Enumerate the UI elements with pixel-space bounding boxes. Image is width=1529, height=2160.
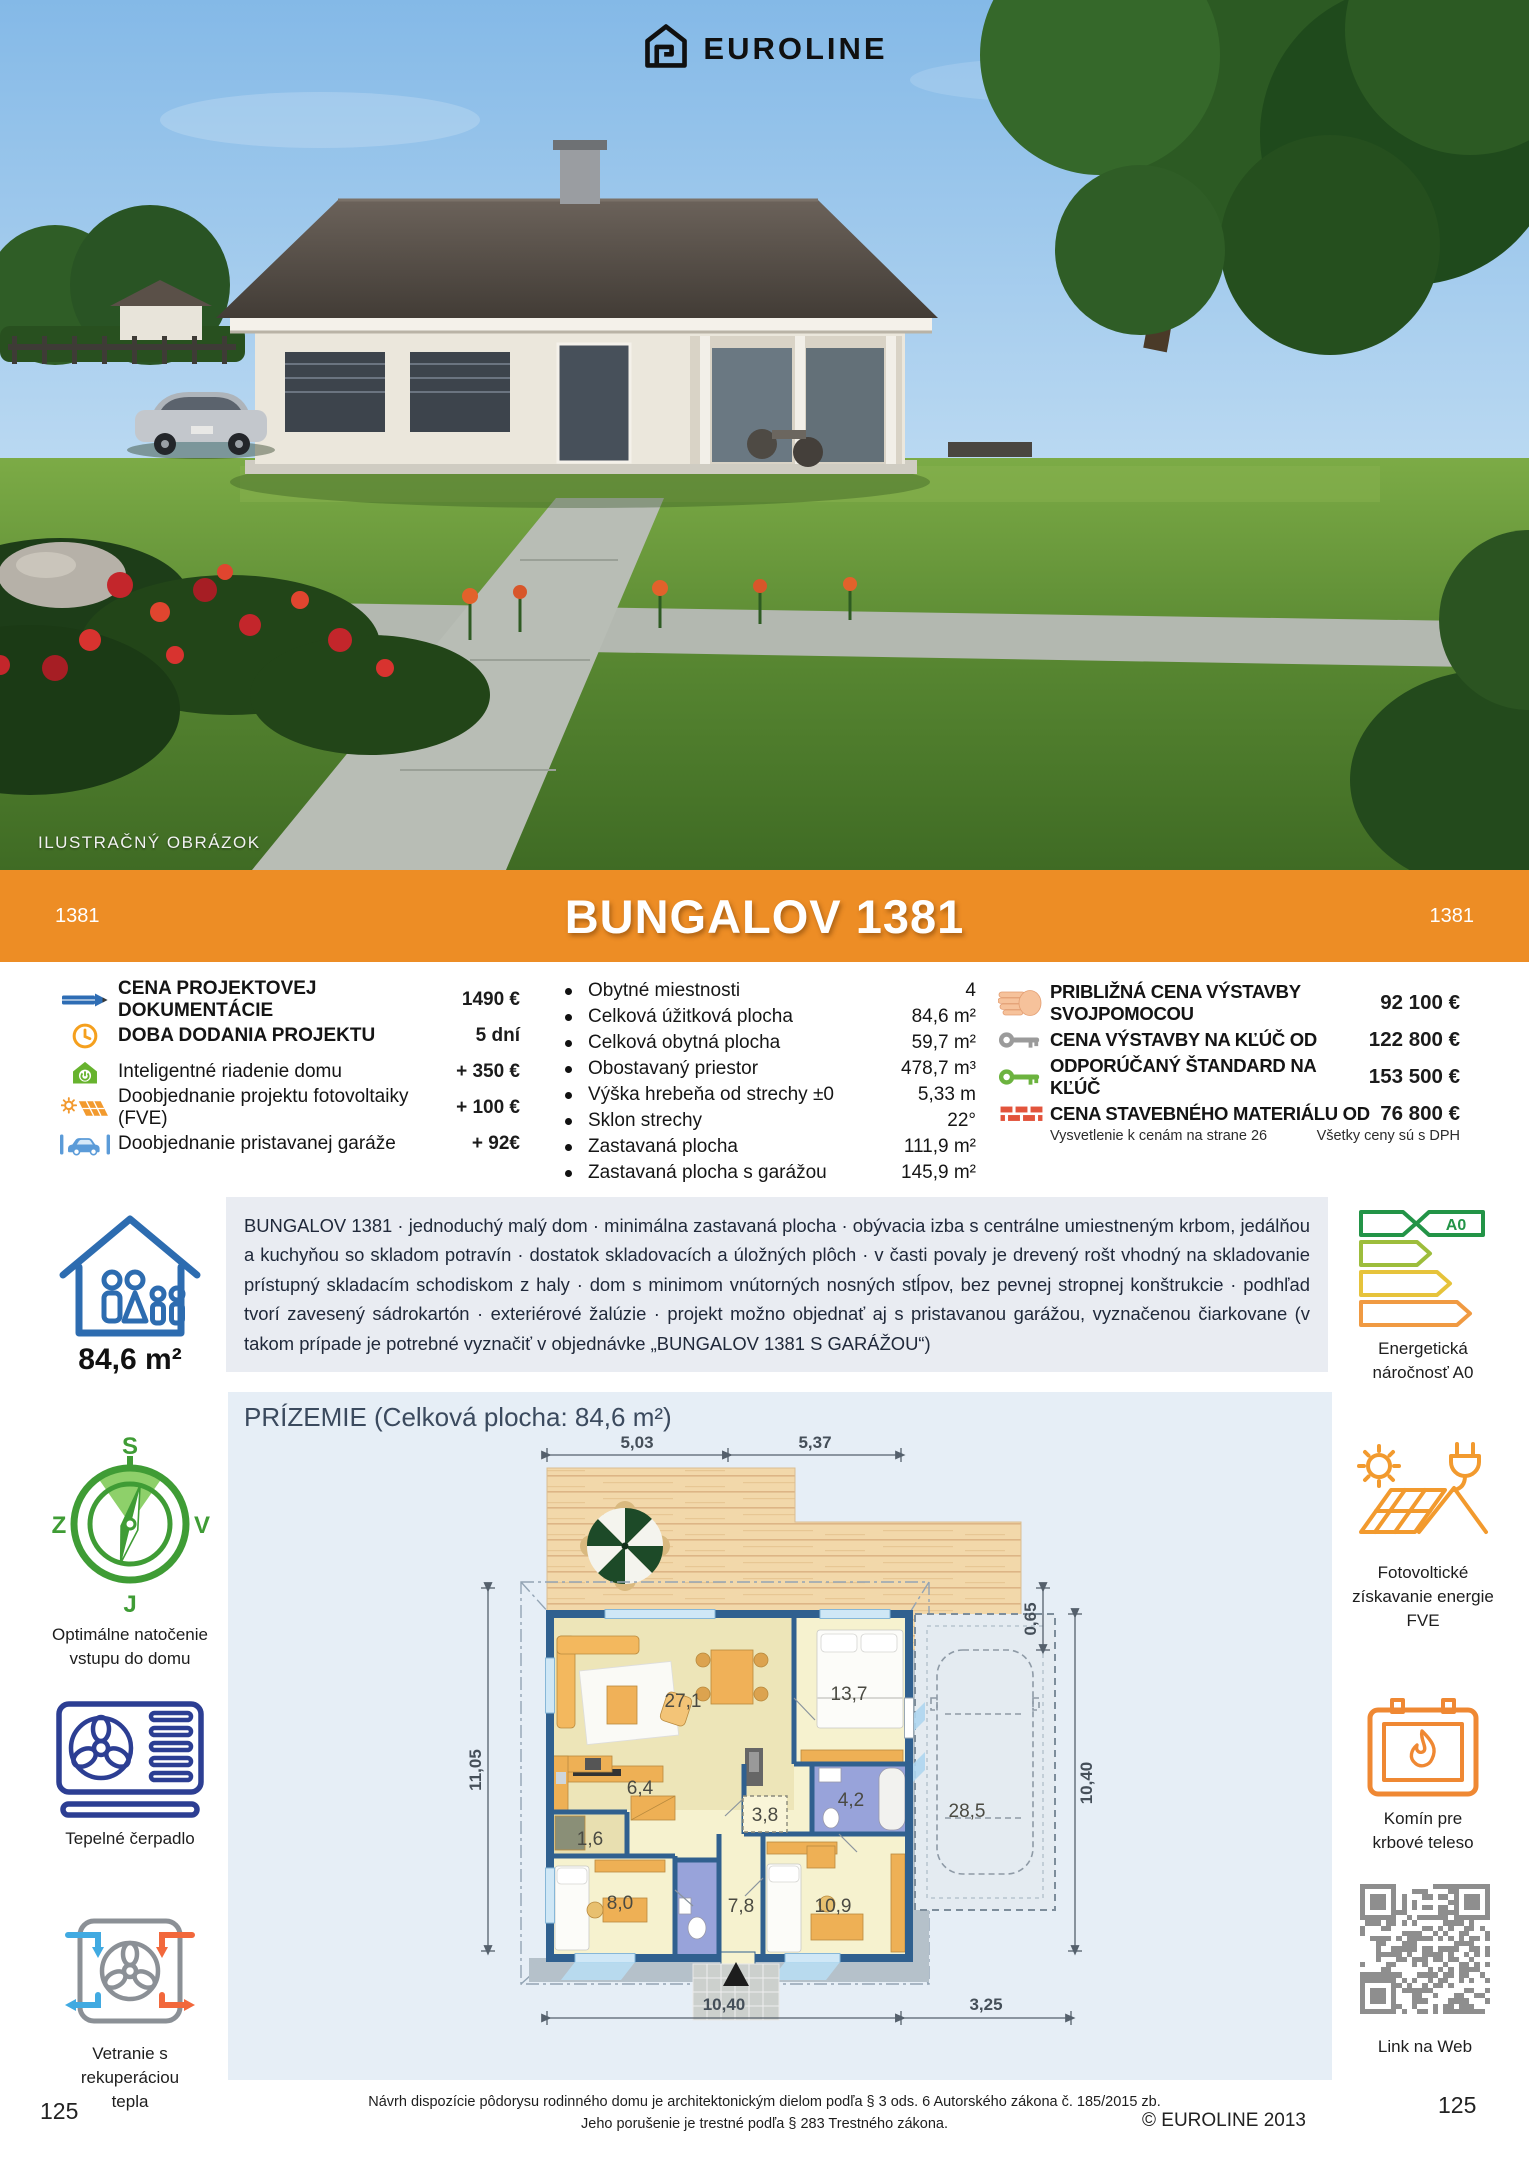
energy-label-icon: A0 [1357,1208,1489,1332]
option-label: DOBA DODANIA PROJEKTU [118,1025,476,1047]
option-value: 5 dní [476,1025,520,1047]
spec-row: Obostavaný priestor478,7 m³ [548,1056,976,1082]
garage-outline [911,1614,1055,1910]
spec-label: Sklon strechy [588,1110,947,1132]
svg-text:S: S [122,1433,138,1460]
option-label: Doobjednanie pristavanej garáže [118,1133,472,1155]
bullet-icon [548,1066,588,1073]
spec-value: 4 [965,980,976,1002]
key-gray-icon [998,1030,1050,1050]
spec-value: 478,7 m³ [901,1058,976,1080]
svg-text:8,0: 8,0 [607,1893,633,1914]
spec-row: Výška hrebeňa od strechy ±05,33 m [548,1082,976,1108]
qr-label: Link na Web [1358,2035,1492,2059]
svg-text:10,40: 10,40 [703,1995,746,2014]
family-house-icon [55,1205,205,1339]
option-row: Doobjednanie projektu fotovoltaiky (FVE)… [52,1090,520,1126]
option-row: CENA PROJEKTOVEJ DOKUMENTÁCIE 1490 € [52,982,520,1018]
legal-line-1: Návrh dispozície pôdorysu rodinného domu… [0,2094,1529,2110]
svg-text:5,37: 5,37 [798,1433,831,1452]
euroline-house-icon [641,22,691,75]
title-banner: 1381 BUNGALOV 1381 1381 [0,870,1529,962]
brand-logo: EUROLINE [0,22,1529,75]
solar-icon [52,1097,118,1120]
model-code-right: 1381 [1430,870,1475,962]
option-row: DOBA DODANIA PROJEKTU 5 dní [52,1018,520,1054]
spec-row: Zastavaná plocha111,9 m² [548,1134,976,1160]
bullet-icon [548,1014,588,1021]
svg-text:3,8: 3,8 [752,1805,778,1826]
svg-text:3,25: 3,25 [969,1995,1002,2014]
svg-text:10,9: 10,9 [815,1896,852,1917]
option-value: + 350 € [456,1061,520,1083]
svg-text:11,05: 11,05 [466,1749,485,1791]
price-row: CENA VÝSTAVBY NA KĽÚČ OD 122 800 € [998,1021,1460,1058]
energy-label: Energetická náročnosť A0 [1348,1337,1498,1385]
option-label: CENA PROJEKTOVEJ DOKUMENTÁCIE [118,978,462,1022]
svg-text:V: V [194,1512,210,1539]
spec-row: Zastavaná plocha s garážou145,9 m² [548,1160,976,1186]
fireplace-block: Komín pre krbové teleso [1358,1698,1488,1855]
compass-label: Optimálne natočenie vstupu do domu [40,1623,220,1671]
option-value: 1490 € [462,989,520,1011]
compass-icon: S J Z V [45,1432,215,1618]
compass-block: S J Z V Optimálne natočenie vstupu do do… [40,1432,220,1671]
option-row: Doobjednanie pristavanej garáže + 92€ [52,1126,520,1162]
svg-text:6,4: 6,4 [627,1778,654,1799]
bullet-icon [548,1040,588,1047]
ventilation-icon [64,1905,196,2037]
heat-pump-icon [55,1700,205,1822]
fireplace-label: Komín pre krbové teleso [1358,1807,1488,1855]
smart-home-icon [52,1060,118,1085]
photovoltaic-icon [1353,1438,1493,1556]
spec-label: Obostavaný priestor [588,1058,901,1080]
spec-row: Celková obytná plocha59,7 m² [548,1030,976,1056]
qr-code [1360,1884,1490,2014]
price-row: ODPORÚČANÝ ŠTANDARD NA KĽÚČ 153 500 € [998,1058,1460,1095]
bricks-icon [998,1105,1050,1123]
price-value: 122 800 € [1369,1028,1460,1052]
spec-value: 84,6 m² [912,1006,976,1028]
price-value: 76 800 € [1380,1102,1460,1126]
option-label: Doobjednanie projektu fotovoltaiky (FVE) [118,1086,456,1130]
svg-text:Z: Z [52,1512,67,1539]
svg-text:27,1: 27,1 [665,1691,702,1712]
spec-row: Celková úžitková plocha84,6 m² [548,1004,976,1030]
spec-value: 59,7 m² [912,1032,976,1054]
energy-block: A0 Energetická náročnosť A0 [1348,1208,1498,1385]
spec-row: Obytné miestnosti4 [548,978,976,1004]
option-label: Inteligentné riadenie domu [118,1061,456,1083]
price-row: PRIBLIŽNÁ CENA VÝSTAVBY SVOJPOMOCOU 92 1… [998,984,1460,1021]
heatpump-label: Tepelné čerpadlo [50,1827,210,1851]
svg-text:5,03: 5,03 [620,1433,653,1452]
pencil-icon [52,992,118,1008]
price-label: CENA STAVEBNÉHO MATERIÁLU OD [1050,1103,1380,1125]
svg-text:7,8: 7,8 [728,1896,754,1917]
copyright: © EUROLINE 2013 [1142,2110,1306,2132]
pv-label: Fotovoltické získavanie energie FVE [1348,1561,1498,1633]
price-note-right: Všetky ceny sú s DPH [1317,1128,1460,1144]
svg-text:10,40: 10,40 [1077,1762,1096,1805]
ventilation-block: Vetranie s rekuperáciou tepla [64,1905,196,2114]
price-label: PRIBLIŽNÁ CENA VÝSTAVBY SVOJPOMOCOU [1050,981,1380,1025]
bullet-icon [548,1144,588,1151]
brand-name: EUROLINE [703,31,887,67]
heatpump-block: Tepelné čerpadlo [50,1700,210,1851]
bullet-icon [548,1118,588,1125]
spec-label: Obytné miestnosti [588,980,965,1002]
spec-label: Zastavaná plocha s garážou [588,1162,901,1184]
bullet-icon [548,1092,588,1099]
spec-value: 111,9 m² [904,1136,976,1158]
spec-label: Celková úžitková plocha [588,1006,912,1028]
family-capacity [48,1205,212,1344]
house-description: BUNGALOV 1381 · jednoduchý malý dom · mi… [244,1211,1310,1358]
catalog-page: EUROLINE ILUSTRAČNÝ OBRÁZOK 1381 BUNGALO… [0,0,1529,2160]
spec-label: Celková obytná plocha [588,1032,912,1054]
bullet-icon [548,988,588,995]
description-band: BUNGALOV 1381 · jednoduchý malý dom · mi… [226,1197,1328,1372]
house-photo [0,0,1529,870]
price-row: CENA STAVEBNÉHO MATERIÁLU OD 76 800 € [998,1095,1460,1132]
fireplace-icon [1364,1698,1482,1802]
pv-block: Fotovoltické získavanie energie FVE [1348,1438,1498,1633]
svg-text:13,7: 13,7 [831,1684,868,1705]
price-notes: Vysvetlenie k cenám na strane 26 Všetky … [998,1128,1460,1144]
spec-label: Zastavaná plocha [588,1136,904,1158]
spec-row: Sklon strechy22° [548,1108,976,1134]
spec-value: 22° [947,1110,976,1132]
clock-icon [52,1023,118,1049]
price-label: ODPORÚČANÝ ŠTANDARD NA KĽÚČ [1050,1055,1369,1099]
svg-text:A0: A0 [1446,1217,1467,1234]
spec-label: Výška hrebeňa od strechy ±0 [588,1084,918,1106]
floorplan-drawing: 27,1 13,7 6,4 1,6 3,8 4,2 8,0 7,8 10,9 2… [455,1398,1135,2080]
svg-text:28,5: 28,5 [949,1801,986,1822]
price-value: 92 100 € [1380,991,1460,1015]
spec-value: 5,33 m [918,1084,976,1106]
photo-caption: ILUSTRAČNÝ OBRÁZOK [38,833,261,853]
price-label: CENA VÝSTAVBY NA KĽÚČ OD [1050,1029,1369,1051]
option-value: + 92€ [472,1133,520,1155]
svg-text:0,65: 0,65 [1021,1602,1040,1635]
option-value: + 100 € [456,1097,520,1119]
page-title: BUNGALOV 1381 [0,870,1529,962]
svg-text:4,2: 4,2 [838,1790,864,1811]
option-row: Inteligentné riadenie domu + 350 € [52,1054,520,1090]
bullet-icon [548,1170,588,1177]
price-value: 153 500 € [1369,1065,1460,1089]
svg-text:1,6: 1,6 [577,1829,603,1850]
price-note-left: Vysvetlenie k cenám na strane 26 [998,1128,1267,1144]
usable-area-badge: 84,6 m² [40,1343,220,1377]
garage-car-icon [52,1133,118,1156]
spec-value: 145,9 m² [901,1162,976,1184]
hand-icon [998,988,1050,1017]
key-green-icon [998,1067,1050,1087]
svg-text:J: J [123,1591,136,1618]
